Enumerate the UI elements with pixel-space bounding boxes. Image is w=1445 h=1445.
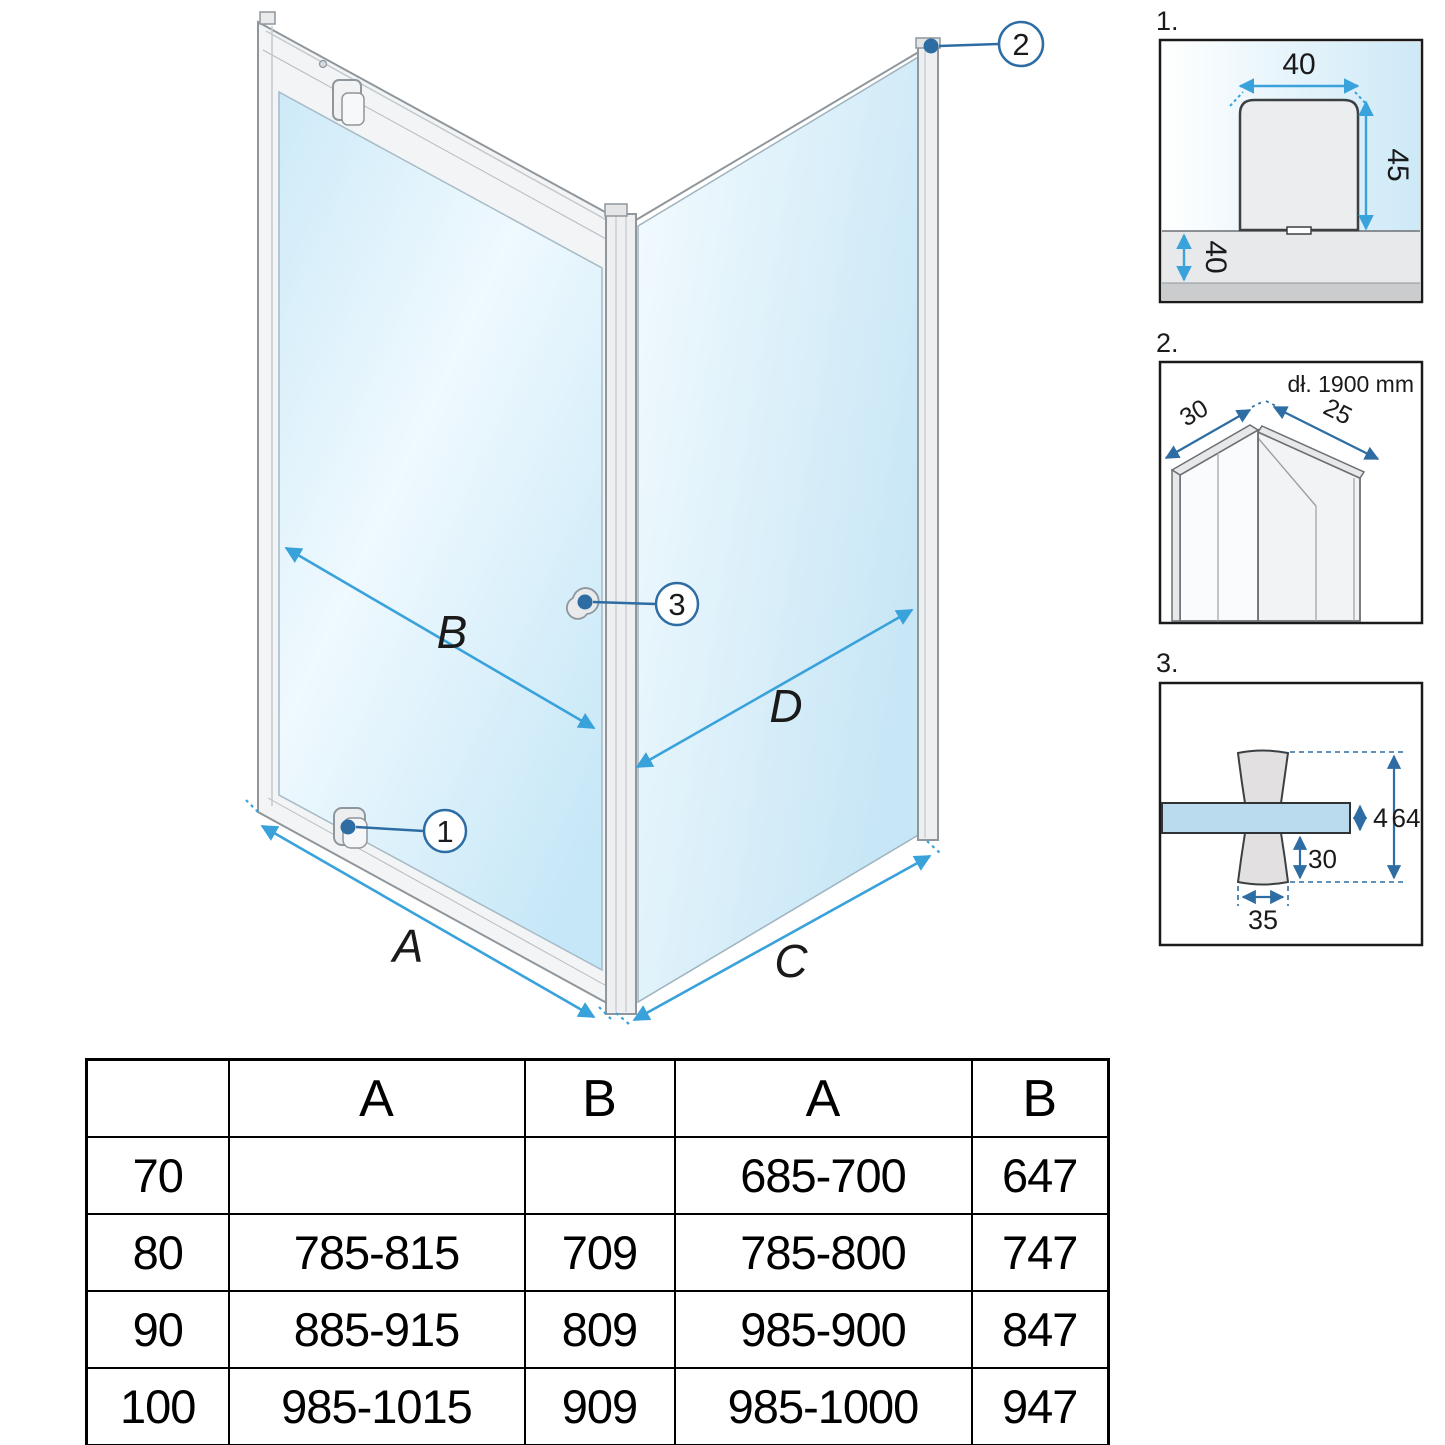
- detail-3-total-dim: 64: [1392, 803, 1421, 833]
- front-door-panel: [258, 12, 616, 1008]
- detail-3-lower-dim: 30: [1308, 844, 1337, 874]
- cell-b-door: 909: [525, 1368, 675, 1445]
- door-top-cap: [260, 12, 275, 24]
- callout-2-number: 2: [1012, 27, 1029, 62]
- table-row: 100 985-1015 909 985-1000 947: [87, 1368, 1109, 1445]
- cell-a-panel: 985-1000: [675, 1368, 972, 1445]
- corner-profile-cap: [605, 204, 627, 216]
- dimension-label-c: C: [774, 935, 808, 987]
- cell-a-door: 885-915: [229, 1291, 525, 1368]
- diagram-svg: A B C D 1 2 3 1.: [0, 0, 1445, 1058]
- cell-a-panel: 985-900: [675, 1291, 972, 1368]
- cell-a-panel: 685-700: [675, 1137, 972, 1214]
- header-size: [87, 1060, 229, 1138]
- cell-size: 70: [87, 1137, 229, 1214]
- callout-3-number: 3: [668, 587, 685, 622]
- screw-icon: [320, 61, 327, 68]
- detail-3-label: 3.: [1156, 648, 1179, 678]
- cell-size: 90: [87, 1291, 229, 1368]
- cell-a-door: 785-815: [229, 1214, 525, 1291]
- profile-cross-section: [1240, 100, 1358, 230]
- detail-1-wall-profile-section: 1. 40 45 40: [1156, 6, 1422, 302]
- header-a-panel: A: [675, 1060, 972, 1138]
- dimension-label-d: D: [769, 680, 802, 732]
- table-row: 80 785-815 709 785-800 747: [87, 1214, 1109, 1291]
- table-row: 90 885-915 809 985-900 847: [87, 1291, 1109, 1368]
- cell-b-door: [525, 1137, 675, 1214]
- cell-b-panel: 947: [972, 1368, 1109, 1445]
- detail-1-tray-dim: 40: [1199, 240, 1232, 273]
- cell-a-panel: 785-800: [675, 1214, 972, 1291]
- callout-2: 2: [924, 22, 1044, 66]
- side-panel-glass: [638, 56, 920, 1002]
- dimension-label-a: A: [390, 920, 424, 972]
- knob-bottom-half: [1238, 833, 1288, 885]
- corner-profile: [605, 204, 636, 1014]
- dimension-label-b: B: [437, 606, 468, 658]
- header-b-panel: B: [972, 1060, 1109, 1138]
- size-table: A B A B 70 685-700 647 80 785-815 709 78…: [85, 1058, 1110, 1445]
- cell-b-door: 709: [525, 1214, 675, 1291]
- cell-b-door: 809: [525, 1291, 675, 1368]
- detail-2-length-note: dł. 1900 mm: [1287, 371, 1414, 397]
- detail-3-knob-dim: 35: [1248, 905, 1278, 935]
- detail-1-label: 1.: [1156, 6, 1179, 36]
- knob-top-half: [1238, 751, 1288, 804]
- header-a-door: A: [229, 1060, 525, 1138]
- detail-1-top-dim: 40: [1282, 48, 1315, 81]
- cell-a-door: [229, 1137, 525, 1214]
- cell-a-door: 985-1015: [229, 1368, 525, 1445]
- cell-size: 80: [87, 1214, 229, 1291]
- detail-3-knob-section: 3. 4 64 30 35: [1156, 648, 1422, 945]
- table-header-row: A B A B: [87, 1060, 1109, 1138]
- shower-enclosure-technical-drawing: A B C D 1 2 3 1.: [0, 0, 1445, 1445]
- glass-bar: [1162, 803, 1350, 833]
- cell-b-panel: 847: [972, 1291, 1109, 1368]
- wall-profile: [916, 38, 940, 840]
- main-isometric-drawing: A B C D 1 2 3: [246, 12, 1043, 1024]
- cell-b-panel: 747: [972, 1214, 1109, 1291]
- callout-1-number: 1: [436, 814, 453, 849]
- cell-b-panel: 647: [972, 1137, 1109, 1214]
- detail-2-label: 2.: [1156, 328, 1179, 358]
- detail-2-corner-top-view: 2. dł. 1900 mm 30 25: [1156, 328, 1422, 623]
- header-b-door: B: [525, 1060, 675, 1138]
- table-row: 70 685-700 647: [87, 1137, 1109, 1214]
- detail-3-glass-dim: 4: [1373, 803, 1388, 833]
- detail-1-side-dim: 45: [1381, 148, 1414, 181]
- side-panel: [636, 50, 922, 1002]
- cell-size: 100: [87, 1368, 229, 1445]
